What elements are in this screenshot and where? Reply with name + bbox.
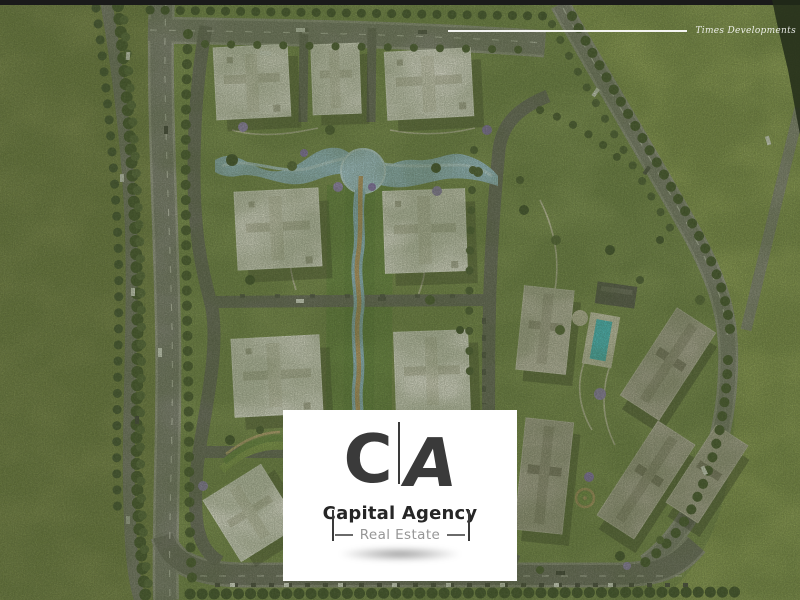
tagline-row: Real Estate [335, 527, 466, 543]
logo-soft-shadow [315, 544, 485, 564]
tagline-dash-left [335, 534, 353, 536]
monogram-letter-c: C [343, 420, 390, 498]
monogram-divider [398, 422, 400, 484]
tagline-dash-right [447, 534, 465, 536]
agency-name: Capital Agency [323, 504, 478, 524]
frame-bracket-left [332, 510, 334, 541]
agency-tagline: Real Estate [360, 527, 441, 543]
monogram-letter-a: A [397, 423, 463, 503]
frame-bracket-right [468, 510, 470, 541]
ca-monogram: C A [343, 420, 456, 502]
aerial-masterplan-screenshot: Times Developments C A Capital Agency Re… [0, 0, 800, 600]
top-dark-edge [0, 0, 800, 5]
capital-agency-logo-card: C A Capital Agency Real Estate [283, 410, 517, 581]
